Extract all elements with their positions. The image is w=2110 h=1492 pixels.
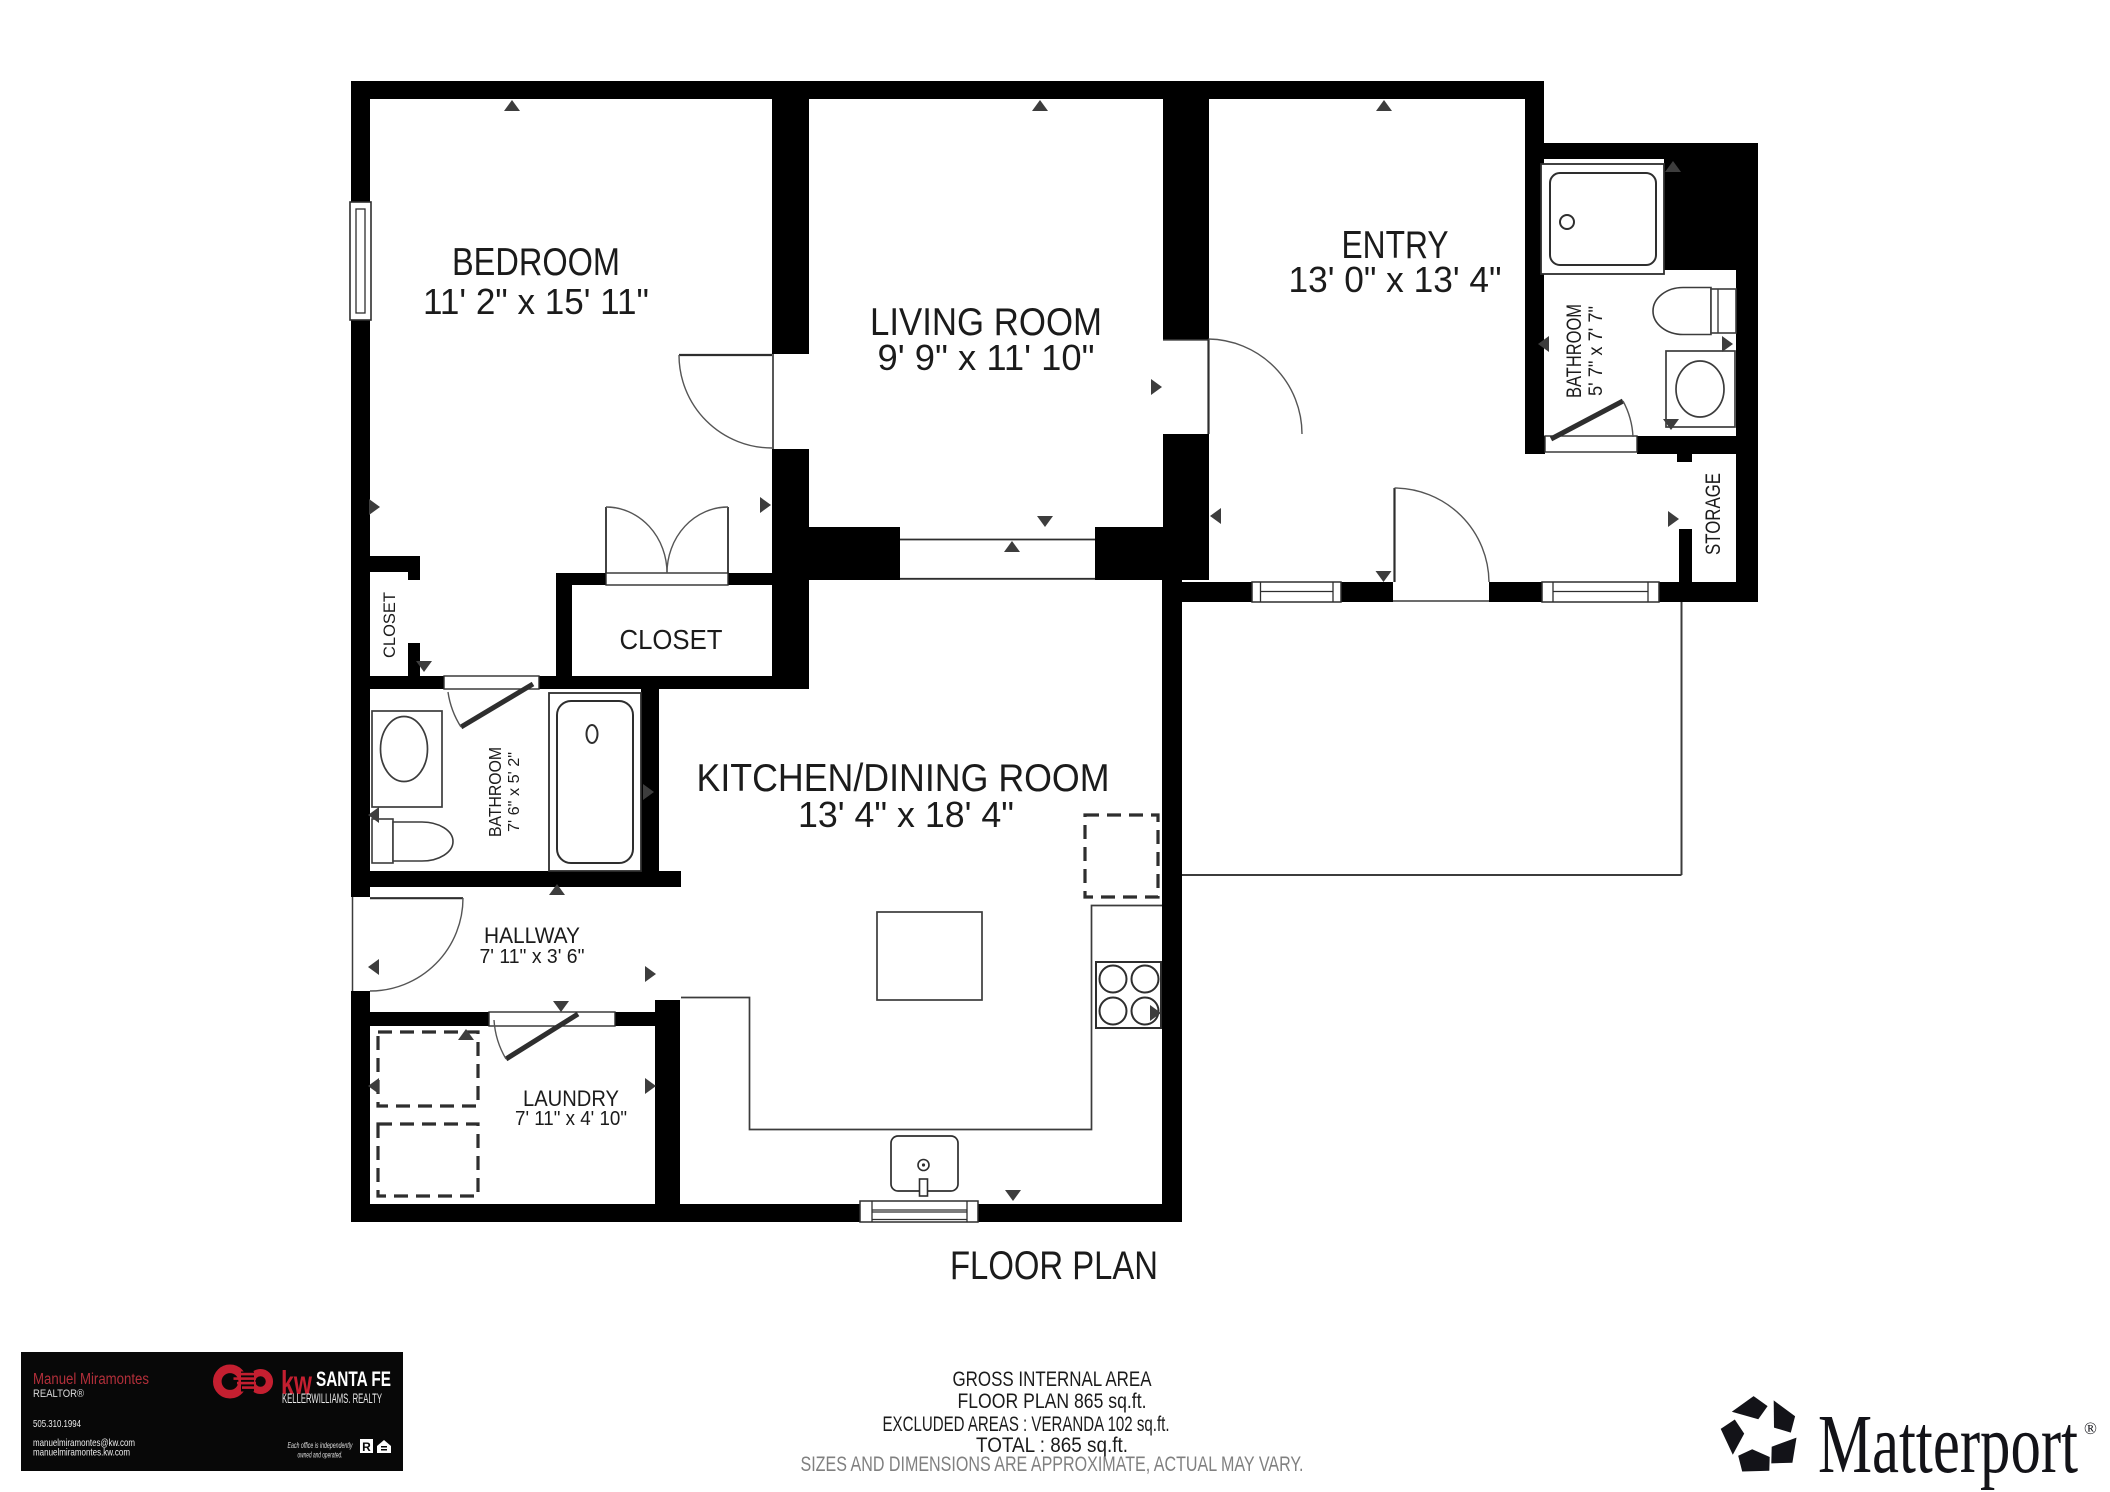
- svg-text:Matterport: Matterport: [1818, 1398, 2078, 1491]
- svg-text:11' 2" x 15' 11": 11' 2" x 15' 11": [423, 281, 649, 322]
- svg-text:Manuel Miramontes: Manuel Miramontes: [33, 1371, 149, 1388]
- svg-text:BATHROOM: BATHROOM: [485, 747, 505, 837]
- svg-text:BATHROOM: BATHROOM: [1563, 304, 1586, 398]
- svg-text:GROSS INTERNAL AREA: GROSS INTERNAL AREA: [953, 1368, 1152, 1391]
- svg-text:Each office is independently: Each office is independently: [288, 1440, 353, 1450]
- svg-text:7' 11" x 3' 6": 7' 11" x 3' 6": [480, 946, 585, 968]
- svg-text:FLOOR PLAN 865 sq.ft.: FLOOR PLAN 865 sq.ft.: [958, 1390, 1147, 1413]
- svg-text:KELLERWILLIAMS. REALTY: KELLERWILLIAMS. REALTY: [282, 1391, 382, 1406]
- svg-text:SANTA FE: SANTA FE: [316, 1367, 391, 1391]
- svg-text:5' 7" x 7' 7": 5' 7" x 7' 7": [1586, 306, 1607, 396]
- svg-text:R: R: [362, 1440, 371, 1454]
- svg-text:FLOOR PLAN: FLOOR PLAN: [950, 1244, 1158, 1288]
- svg-text:STORAGE: STORAGE: [1702, 473, 1725, 555]
- svg-text:SIZES AND DIMENSIONS ARE APPRO: SIZES AND DIMENSIONS ARE APPROXIMATE, AC…: [801, 1453, 1304, 1476]
- svg-text:manuelmiramontes.kw.com: manuelmiramontes.kw.com: [33, 1447, 130, 1459]
- svg-text:505.310.1994: 505.310.1994: [33, 1418, 81, 1430]
- svg-text:CLOSET: CLOSET: [381, 592, 399, 658]
- svg-text:HALLWAY: HALLWAY: [484, 923, 580, 948]
- svg-text:EXCLUDED AREAS : VERANDA 102: EXCLUDED AREAS : VERANDA 102 sq.ft.: [883, 1413, 1170, 1436]
- svg-text:7' 11" x 4' 10": 7' 11" x 4' 10": [515, 1108, 627, 1130]
- svg-text:®: ®: [2084, 1419, 2097, 1438]
- svg-text:9' 9" x 11' 10": 9' 9" x 11' 10": [878, 337, 1095, 378]
- svg-text:CLOSET: CLOSET: [620, 624, 723, 655]
- svg-text:7' 6" x 5' 2": 7' 6" x 5' 2": [506, 752, 523, 832]
- svg-text:BEDROOM: BEDROOM: [452, 241, 620, 284]
- svg-text:13' 0" x 13' 4": 13' 0" x 13' 4": [1289, 259, 1502, 300]
- svg-text:13' 4" x 18' 4": 13' 4" x 18' 4": [798, 794, 1014, 835]
- svg-text:REALTOR®: REALTOR®: [33, 1388, 84, 1400]
- svg-text:owned and operated.: owned and operated.: [298, 1450, 343, 1460]
